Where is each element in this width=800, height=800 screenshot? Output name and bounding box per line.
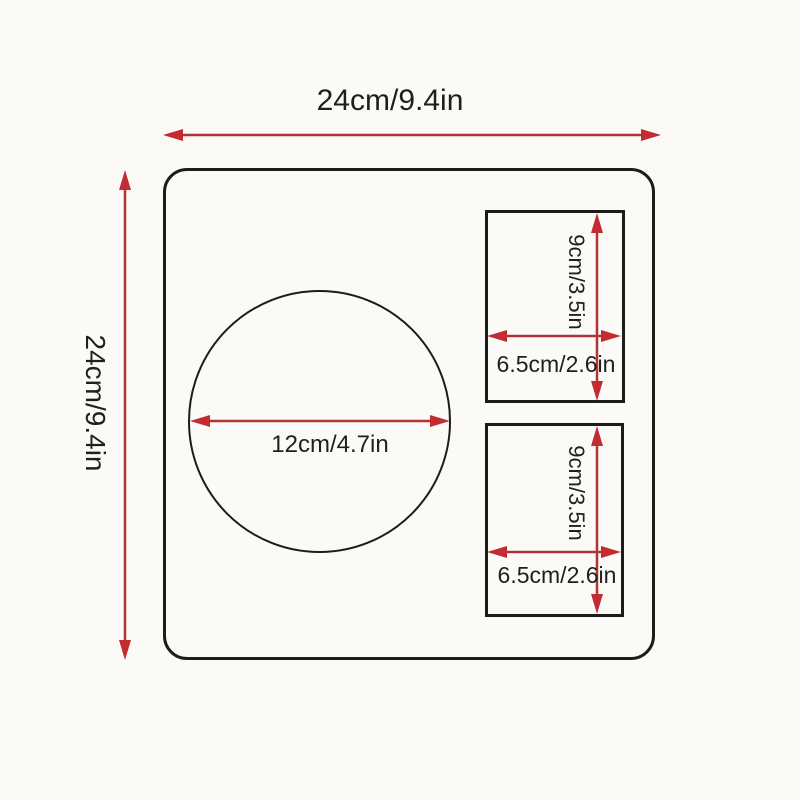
plate-width-arrow	[162, 123, 662, 147]
plate-width-label: 24cm/9.4in	[190, 84, 590, 117]
circle-diameter-label: 12cm/4.7in	[230, 432, 430, 458]
pocket-top-width-label: 6.5cm/2.6in	[456, 352, 656, 377]
pocket-bottom-width-label: 6.5cm/2.6in	[457, 563, 657, 588]
plate-height-label: 24cm/9.4in	[80, 303, 110, 503]
pocket-top-height-label: 9cm/3.5in	[562, 202, 588, 362]
dimension-diagram: 24cm/9.4in 24cm/9.4in 12cm/4.7in 9cm/3.5…	[0, 0, 800, 800]
circle-diameter-arrow	[189, 409, 451, 433]
pocket-bottom-width-arrow	[486, 540, 622, 564]
pocket-top-width-arrow	[486, 324, 622, 348]
pocket-bottom-height-label: 9cm/3.5in	[562, 413, 588, 573]
plate-height-arrow	[113, 169, 137, 661]
